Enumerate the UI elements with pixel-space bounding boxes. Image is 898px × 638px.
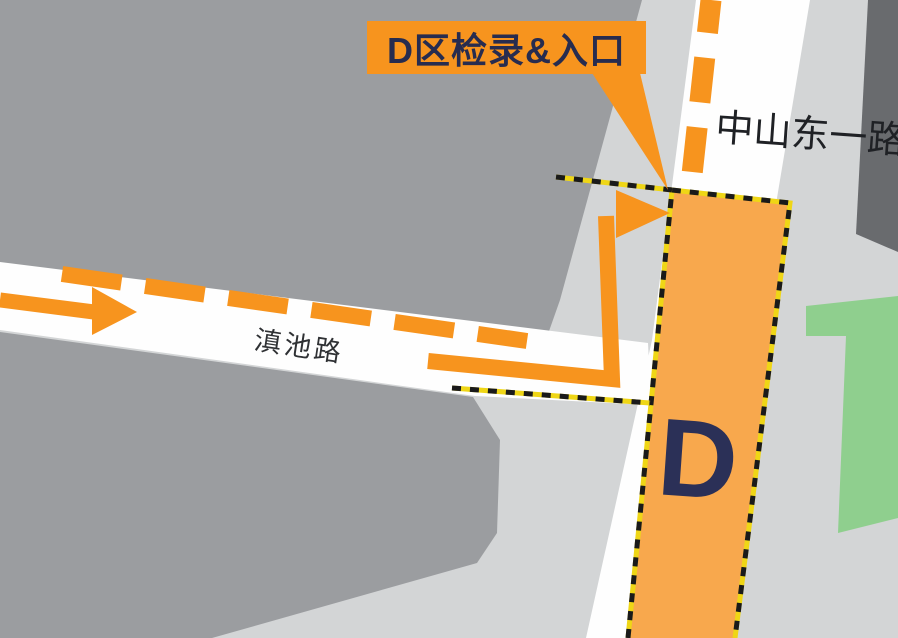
road-name-zhongshan: 中山东一路 [714, 105, 763, 155]
zone-d-letter: D [638, 396, 758, 524]
wayfinding-map-svg [0, 0, 898, 638]
map-canvas: D区检录&入口 中山东一路 滇池路 D [0, 0, 898, 638]
callout-label: D区检录&入口 [367, 21, 646, 74]
